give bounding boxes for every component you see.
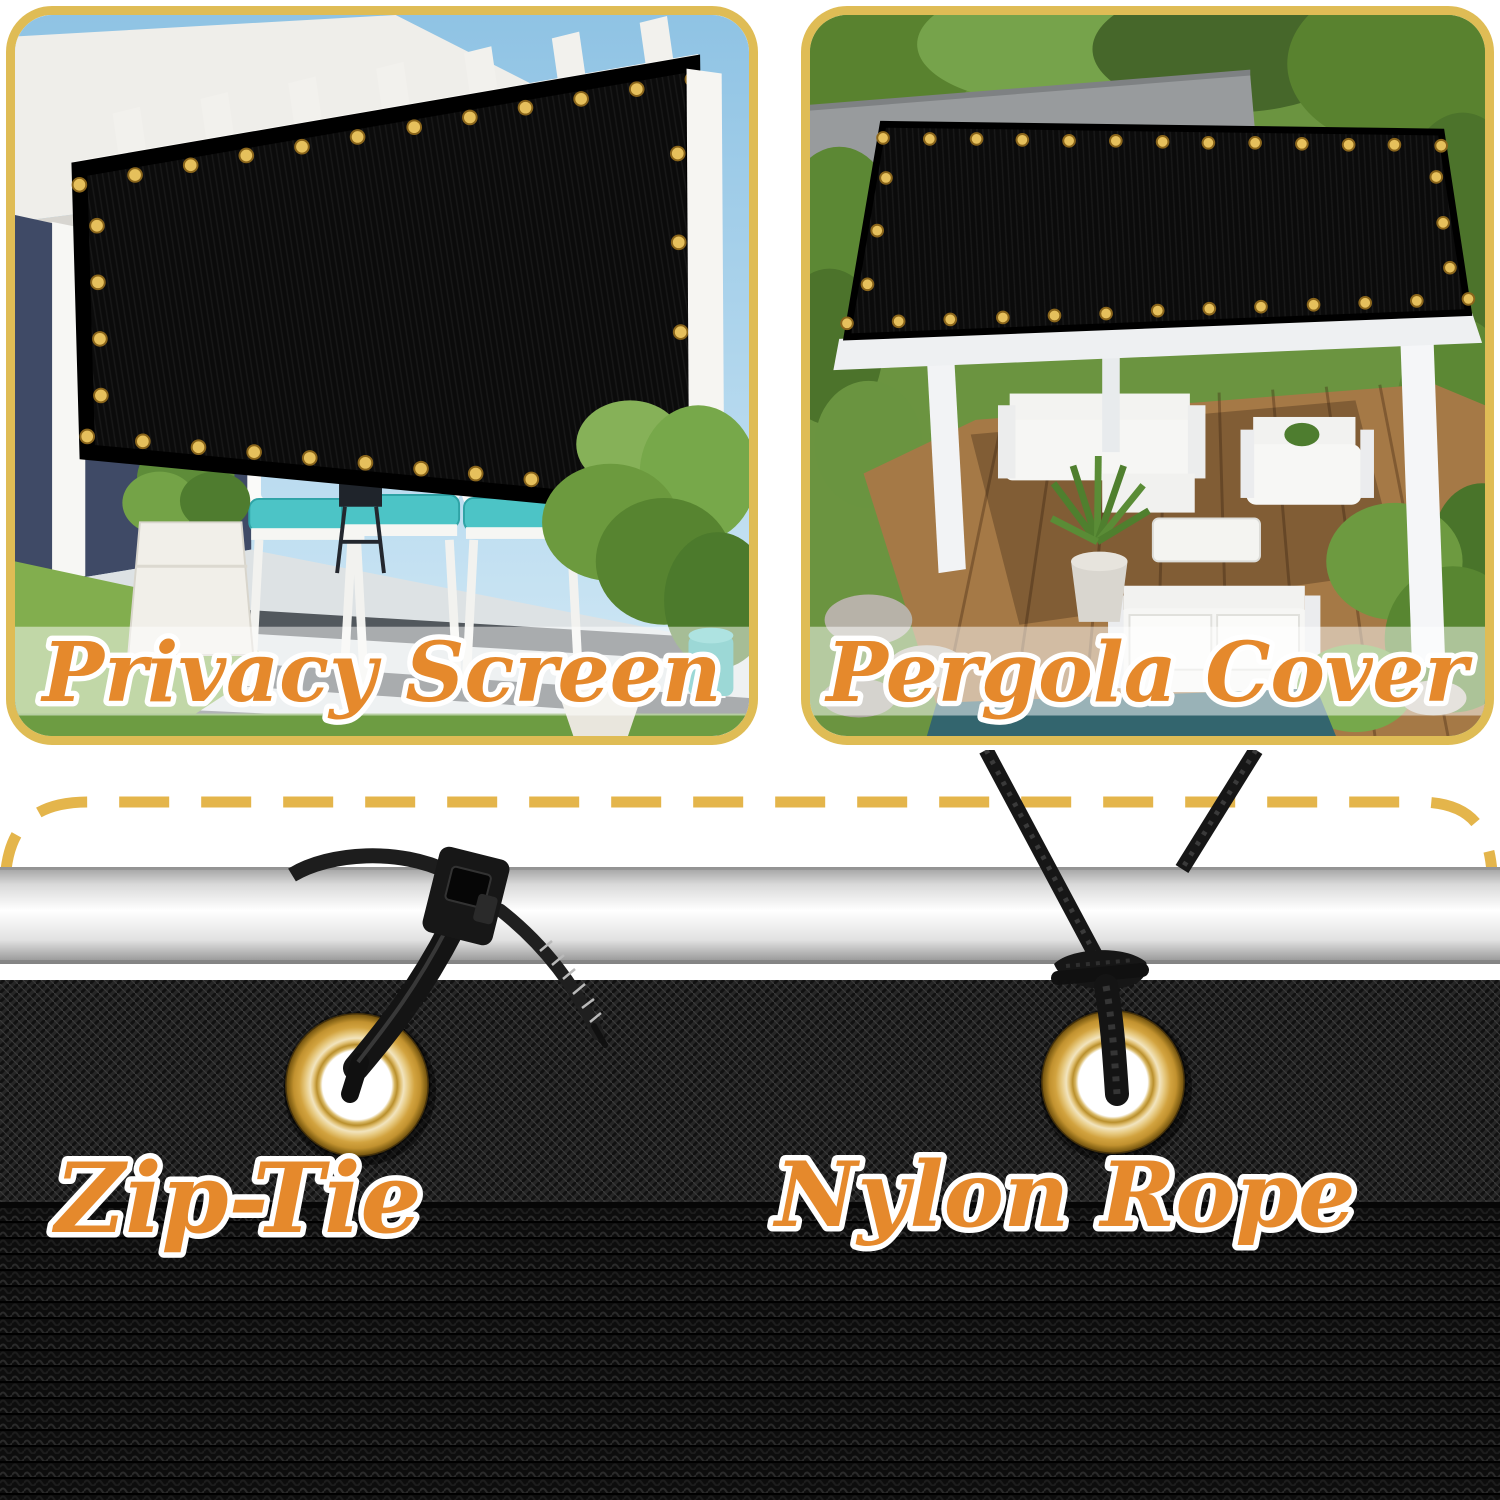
- pergola-cover-label: Pergola Cover: [824, 625, 1473, 721]
- hardware-scene: Zip-Tie Nylon Rope: [0, 750, 1500, 1500]
- pergola-cover-mesh: [841, 124, 1474, 337]
- panel-privacy-screen: Privacy Screen: [6, 6, 758, 745]
- hardware-closeup: Zip-Tie Nylon Rope: [0, 750, 1500, 1500]
- privacy-screen-label: Privacy Screen: [40, 625, 721, 721]
- zip-tie-label: Zip-Tie: [51, 1142, 422, 1255]
- panel-pergola-cover: Pergola Cover: [801, 6, 1494, 745]
- mounting-pole: [0, 867, 1500, 964]
- product-image: Privacy Screen: [0, 0, 1500, 1500]
- pergola-cover-photo: Pergola Cover: [810, 15, 1485, 736]
- nylon-rope-label: Nylon Rope: [772, 1142, 1356, 1248]
- privacy-screen-photo: Privacy Screen: [15, 15, 749, 736]
